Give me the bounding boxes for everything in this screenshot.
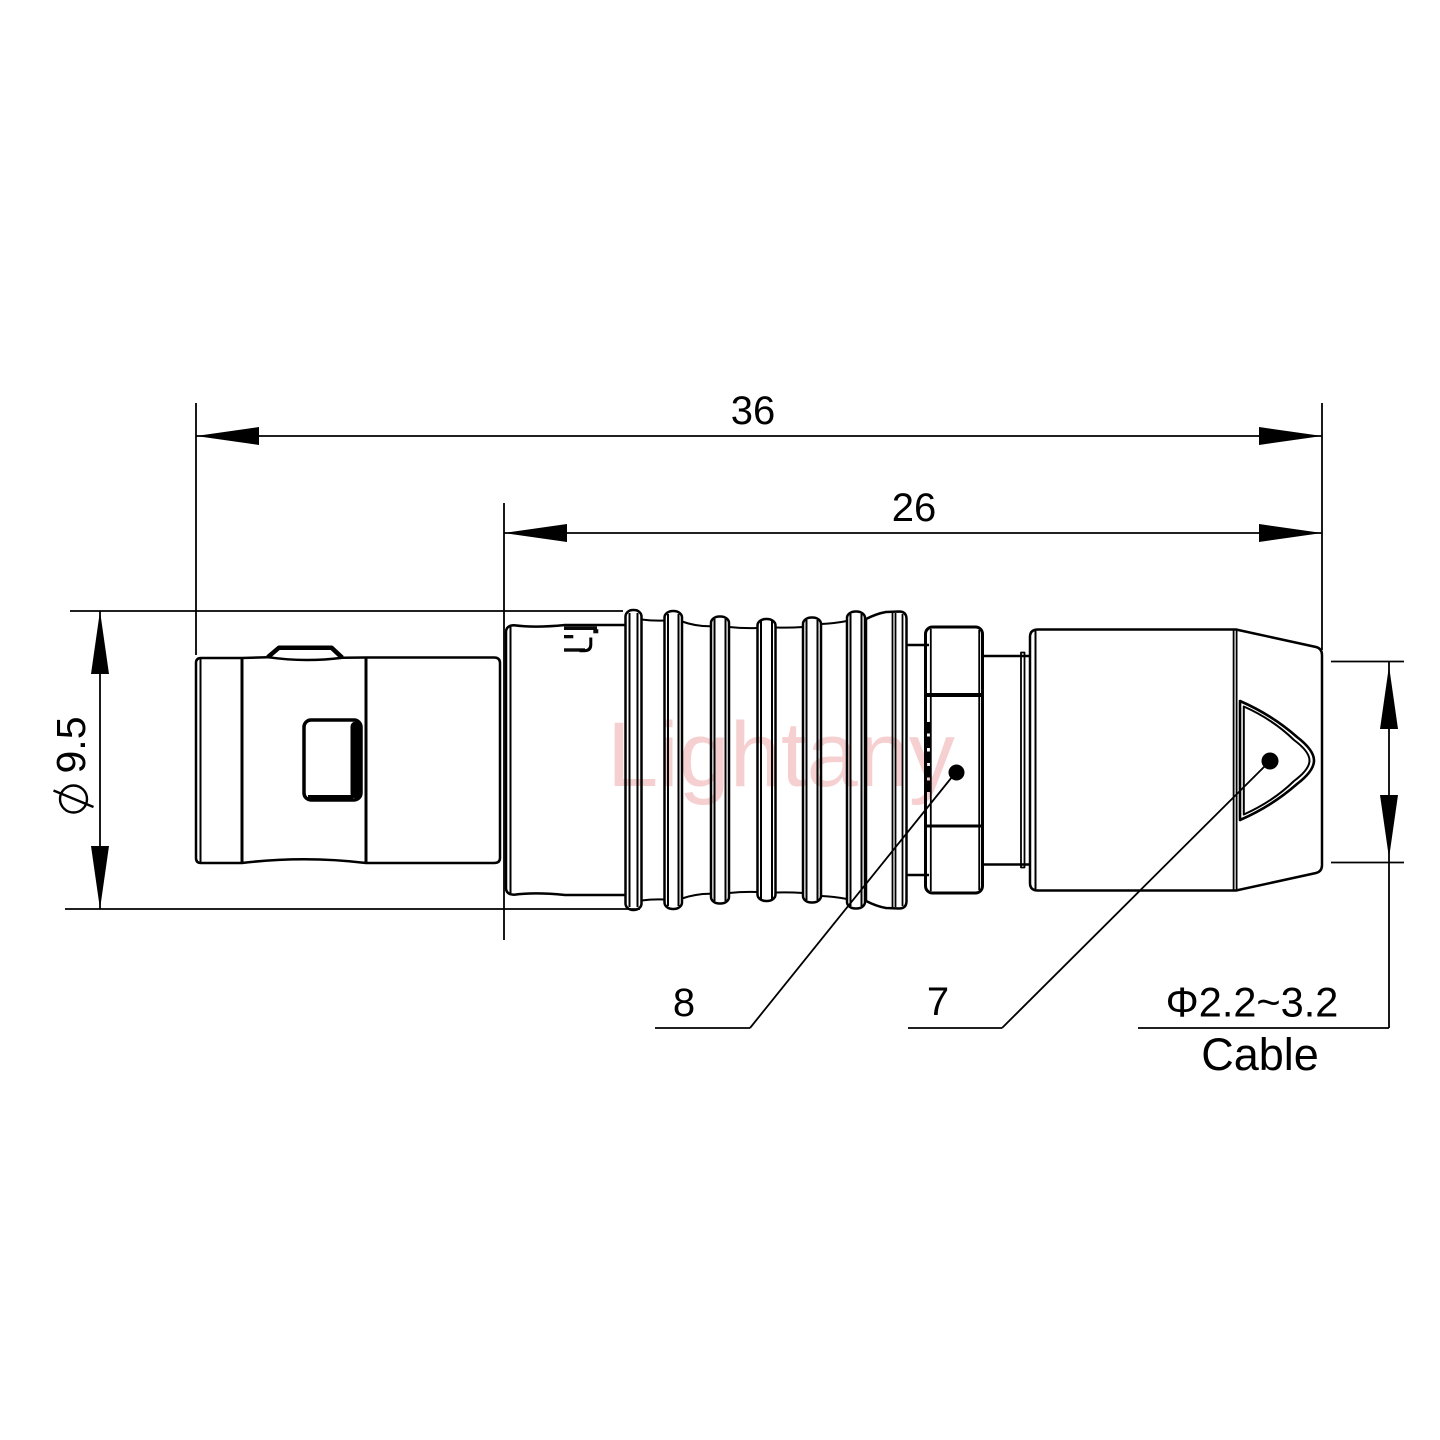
svg-text:9.5: 9.5 bbox=[48, 717, 94, 774]
svg-text:26: 26 bbox=[892, 486, 937, 530]
svg-text:8: 8 bbox=[673, 981, 695, 1025]
svg-text:36: 36 bbox=[731, 389, 776, 433]
svg-text:Cable: Cable bbox=[1201, 1029, 1319, 1080]
svg-text:Φ2.2~3.2: Φ2.2~3.2 bbox=[1166, 979, 1339, 1026]
svg-text:7: 7 bbox=[927, 980, 949, 1024]
